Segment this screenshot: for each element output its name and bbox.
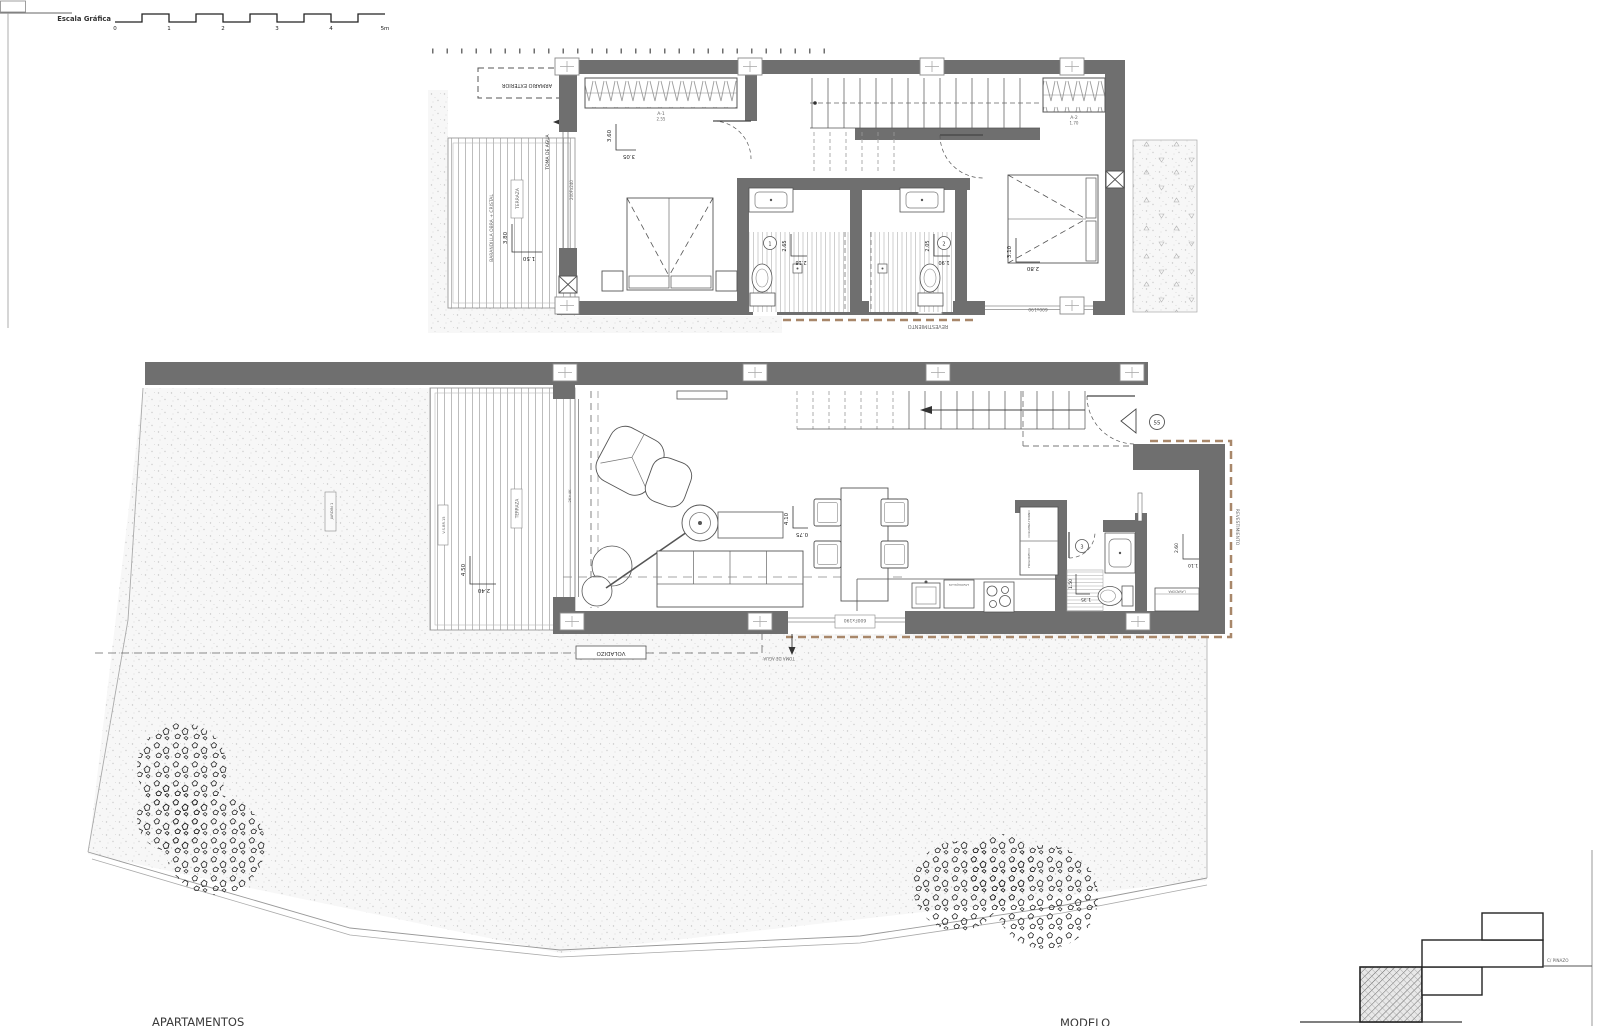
key-plan-unit-highlight xyxy=(1360,967,1422,1022)
dim-205: 2.05 xyxy=(925,240,931,251)
sofa xyxy=(657,551,803,607)
dim-265: 2.65 xyxy=(782,240,788,251)
tall-unit-oven-label: COLUMNA HORNO xyxy=(1027,510,1031,538)
pillar-box xyxy=(748,613,772,630)
scale-tick-4: 4 xyxy=(329,26,333,32)
gravel-strip xyxy=(430,316,782,333)
dim-380: 3.80 xyxy=(503,231,509,244)
wall-stub xyxy=(553,597,575,611)
upper-terrace-deck xyxy=(448,138,575,308)
dim-360: 3.60 xyxy=(607,129,613,142)
dim-110: 1.10 xyxy=(1188,562,1198,568)
dim-240: 2.40 xyxy=(477,587,490,593)
wall-stub xyxy=(553,385,575,399)
deck-code: V.S.BR.15 xyxy=(442,516,446,533)
glass-code-label: 200Fx240 xyxy=(569,180,574,200)
scale-tick-5: 5m xyxy=(381,26,390,32)
gravel-triangles xyxy=(1133,140,1197,312)
pillar-box xyxy=(920,58,944,75)
ground-terrace-deck xyxy=(430,388,575,630)
terraza-label: TERRAZA xyxy=(515,187,521,210)
revestimiento-label: REVESTIMIENTO xyxy=(908,323,949,329)
door-swing-arc xyxy=(940,135,983,178)
bath2-toilet xyxy=(920,264,940,292)
dim-bath3-b: 1.35 xyxy=(1081,596,1091,602)
window-code-large: 600x190 xyxy=(1028,306,1048,312)
tree xyxy=(913,834,1098,949)
coffee-table xyxy=(718,512,783,538)
voladizo-label: VOLADIZO xyxy=(596,650,626,656)
entry-marker-triangle xyxy=(1121,409,1136,433)
ground-stairs xyxy=(797,391,1085,429)
deck-terraza-label: TERRAZA xyxy=(515,499,520,520)
dim-305: 3.05 xyxy=(622,153,635,159)
title-apartamentos: APARTAMENTOS xyxy=(152,1015,244,1026)
stair-direction-arrow xyxy=(920,406,932,414)
scale-tick-2: 2 xyxy=(221,26,225,32)
bath1-toilet xyxy=(752,264,772,292)
towel-rail xyxy=(1138,493,1142,521)
barandilla-label: BARANDILLA OBRA + CRISTAL xyxy=(489,194,495,262)
side-table xyxy=(582,576,612,606)
armario-exterior-label: ARMARIO EXTERIOR xyxy=(501,82,552,88)
dim-450: 4.50 xyxy=(461,563,467,576)
entry-door-arc xyxy=(1087,396,1135,444)
wardrobe-2: A-2 1.70 xyxy=(1043,78,1105,126)
floor-plan-sheet: Escala Gráfica 0 1 2 3 4 5m JARDIN 1 ARM… xyxy=(0,0,1600,1026)
dim-410: 4.10 xyxy=(784,512,790,525)
pillar-box xyxy=(1126,613,1150,630)
pillar-box xyxy=(1060,58,1084,75)
key-plan-unit xyxy=(1422,940,1543,967)
revestimiento-vertical-label: REVESTIMIENTO xyxy=(1234,509,1240,546)
pillar-box xyxy=(553,364,577,381)
title-modelo: MODELO xyxy=(1060,1016,1110,1026)
scale-tick-3: 3 xyxy=(275,26,279,32)
pillar-box xyxy=(738,58,762,75)
dim-075: 0.75 xyxy=(795,531,808,537)
wardrobe-2-size: 1.70 xyxy=(1070,121,1079,126)
pillar-box xyxy=(926,364,950,381)
tall-unit-fridge-label: FRIGORIFICO xyxy=(1027,548,1031,568)
ground-glass-code: 2K+4K xyxy=(567,489,572,503)
dim-mark xyxy=(616,124,636,150)
bathroom-3: 3 1.50 1.35 xyxy=(1067,493,1142,611)
pillar-box xyxy=(560,613,584,630)
key-plan-unit xyxy=(1422,967,1482,995)
washing-machine-label: LAVADORA xyxy=(1168,590,1186,594)
dim-190: 1.90 xyxy=(938,259,949,265)
garden-label: JARDIN 1 xyxy=(329,502,334,520)
dim-218: 2.18 xyxy=(795,259,806,265)
pillar-box xyxy=(555,297,579,314)
scale-bar: Escala Gráfica 0 1 2 3 4 5m xyxy=(57,14,389,32)
upper-stairs xyxy=(810,78,1040,172)
dim-mark xyxy=(1183,534,1199,559)
dim-bath3-a: 1.50 xyxy=(1068,579,1074,589)
dishwasher-label: LAVAVAJILLAS xyxy=(949,583,969,587)
bath2-number: 2 xyxy=(942,242,945,248)
gravel-strip xyxy=(428,90,448,332)
bed-1 xyxy=(602,198,737,291)
scale-tick-1: 1 xyxy=(167,26,171,32)
dim-260: 2.60 xyxy=(1174,543,1180,553)
scale-tick-0: 0 xyxy=(113,26,117,32)
x-pillar xyxy=(1106,171,1124,188)
bathroom-1: 1 2.65 2.18 xyxy=(749,188,850,312)
bath3-toilet xyxy=(1098,587,1122,606)
dim-150: 1.50 xyxy=(522,255,535,261)
pillar-box xyxy=(743,364,767,381)
dim-310: 3.10 xyxy=(1007,245,1013,258)
shower-floor xyxy=(1067,570,1103,611)
upper-floor-plan: ARMARIO EXTERIOR TOMA DE AGUA BARANDILLA… xyxy=(428,51,1197,333)
scale-bar-steps xyxy=(115,14,385,22)
door-swing-arc xyxy=(713,121,751,159)
bath1-number: 1 xyxy=(768,242,771,248)
bathroom-2: 2 2.05 1.90 xyxy=(869,188,953,312)
dim-mark xyxy=(793,506,808,528)
key-plan-unit xyxy=(1482,913,1543,940)
ground-top-wall xyxy=(145,362,1148,385)
toma-agua-label: TOMA DE AGUA xyxy=(545,133,551,170)
bath3-number: 3 xyxy=(1080,545,1083,551)
scale-bar-title: Escala Gráfica xyxy=(57,15,111,23)
dining-chair xyxy=(881,541,908,568)
ground-toma-agua-label: TOMA DE AGUA xyxy=(763,656,796,661)
x-pillar xyxy=(559,276,577,293)
cooktop xyxy=(984,582,1014,612)
dining-chair xyxy=(814,541,841,568)
title-block: APARTAMENTOS MODELO xyxy=(152,1015,1110,1026)
wall-shelf xyxy=(677,391,727,399)
wardrobe-1-size: 2.55 xyxy=(657,117,666,122)
dining-chair xyxy=(814,499,841,526)
key-plan: C/ PINAZO xyxy=(1300,913,1592,1022)
pillar-box xyxy=(555,58,579,75)
pillar-box xyxy=(1120,364,1144,381)
wardrobe-1: A-1 2.55 xyxy=(585,78,737,122)
dining-chair xyxy=(881,499,908,526)
dim-280: 2.80 xyxy=(1026,265,1039,271)
laundry: LAVADORA 2.60 1.10 xyxy=(1155,534,1199,611)
street-label: C/ PINAZO xyxy=(1547,958,1569,963)
pillar-box xyxy=(1060,297,1084,314)
ground-window-code: 600Fx190 xyxy=(844,617,867,623)
entry-marker: 55 xyxy=(1154,421,1161,427)
bed-2 xyxy=(1008,175,1098,263)
